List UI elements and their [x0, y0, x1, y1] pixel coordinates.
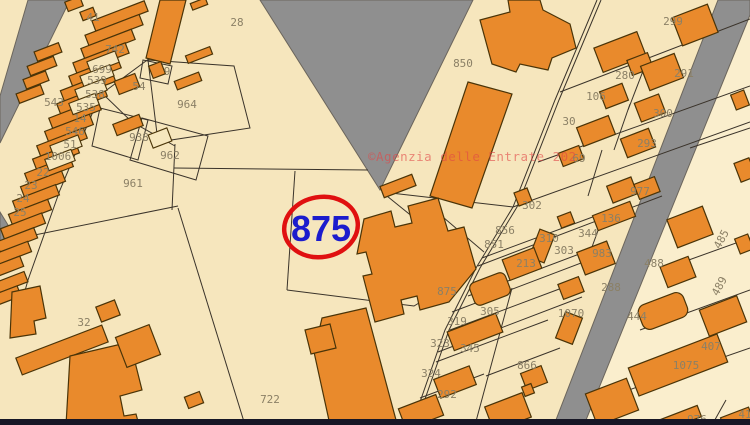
parcel-label: 488 — [644, 257, 664, 270]
parcel-label: 24 — [16, 192, 30, 205]
parcel-label: 444 — [627, 310, 647, 323]
parcel-label: 293 — [637, 137, 657, 150]
parcel-label: 938 — [129, 131, 149, 144]
cadastral-map: 2841742699539538543535145465110062223242… — [0, 0, 750, 425]
parcel-label: 280 — [615, 69, 635, 82]
parcel-label: 539 — [87, 74, 107, 87]
parcel-label: 303 — [554, 244, 574, 257]
parcel-label: 323 — [430, 337, 450, 350]
parcel-label: 30 — [562, 115, 575, 128]
parcel-label: 41 — [86, 11, 99, 24]
parcel-label: 54 — [132, 80, 146, 93]
parcel-label: 28 — [230, 16, 243, 29]
parcel-label: 106 — [586, 90, 606, 103]
parcel-label: 9 — [164, 65, 171, 78]
bottom-bar — [0, 419, 750, 425]
parcel-label: 851 — [484, 238, 504, 251]
building — [305, 324, 336, 354]
parcel-label: 977 — [630, 185, 650, 198]
copyright-watermark: ©Agenzia delle Entrate 202 — [368, 149, 577, 164]
parcel-label: 324 — [421, 367, 441, 380]
parcel-label: 291 — [674, 67, 694, 80]
parcel-label: 961 — [123, 177, 143, 190]
parcel-label: 300 — [653, 107, 673, 120]
parcel-label: 543 — [44, 96, 64, 109]
parcel-label: 875 — [437, 285, 457, 298]
parcel-label: 962 — [160, 149, 180, 162]
parcel-label: 742 — [105, 43, 125, 56]
parcel-label: 345 — [460, 342, 480, 355]
parcel-label: 964 — [177, 98, 197, 111]
cadastral-map-viewport[interactable]: 2841742699539538543535145465110062223242… — [0, 0, 750, 425]
parcel-label: 1070 — [558, 307, 585, 320]
parcel-label: 1075 — [673, 359, 700, 372]
parcel-label: 546 — [65, 125, 85, 138]
parcel-label: 319 — [447, 315, 467, 328]
parcel-label: 23 — [24, 179, 37, 192]
parcel-label: 850 — [453, 57, 473, 70]
parcel-label: 32 — [77, 316, 90, 329]
parcel-label: 407 — [701, 340, 721, 353]
parcel-label: 344 — [578, 227, 598, 240]
parcel-label: 722 — [260, 393, 280, 406]
parcel-label: 14 — [73, 112, 87, 125]
parcel-label: 1006 — [45, 150, 72, 163]
parcel-label: 292 — [437, 388, 457, 401]
selected-parcel-label: 875 — [291, 208, 351, 249]
parcel-label: 213 — [516, 257, 536, 270]
parcel-label: 856 — [495, 224, 515, 237]
parcel-label: 302 — [522, 199, 542, 212]
parcel-label: 305 — [480, 305, 500, 318]
parcel-label: 983 — [592, 247, 612, 260]
parcel-label: 288 — [601, 281, 621, 294]
parcel-label: 538 — [85, 88, 105, 101]
parcel-label: 866 — [517, 359, 537, 372]
parcel-label: 299 — [663, 15, 683, 28]
parcel-label: 22 — [36, 166, 49, 179]
parcel-label: 25 — [13, 206, 26, 219]
parcel-label: 136 — [601, 212, 621, 225]
